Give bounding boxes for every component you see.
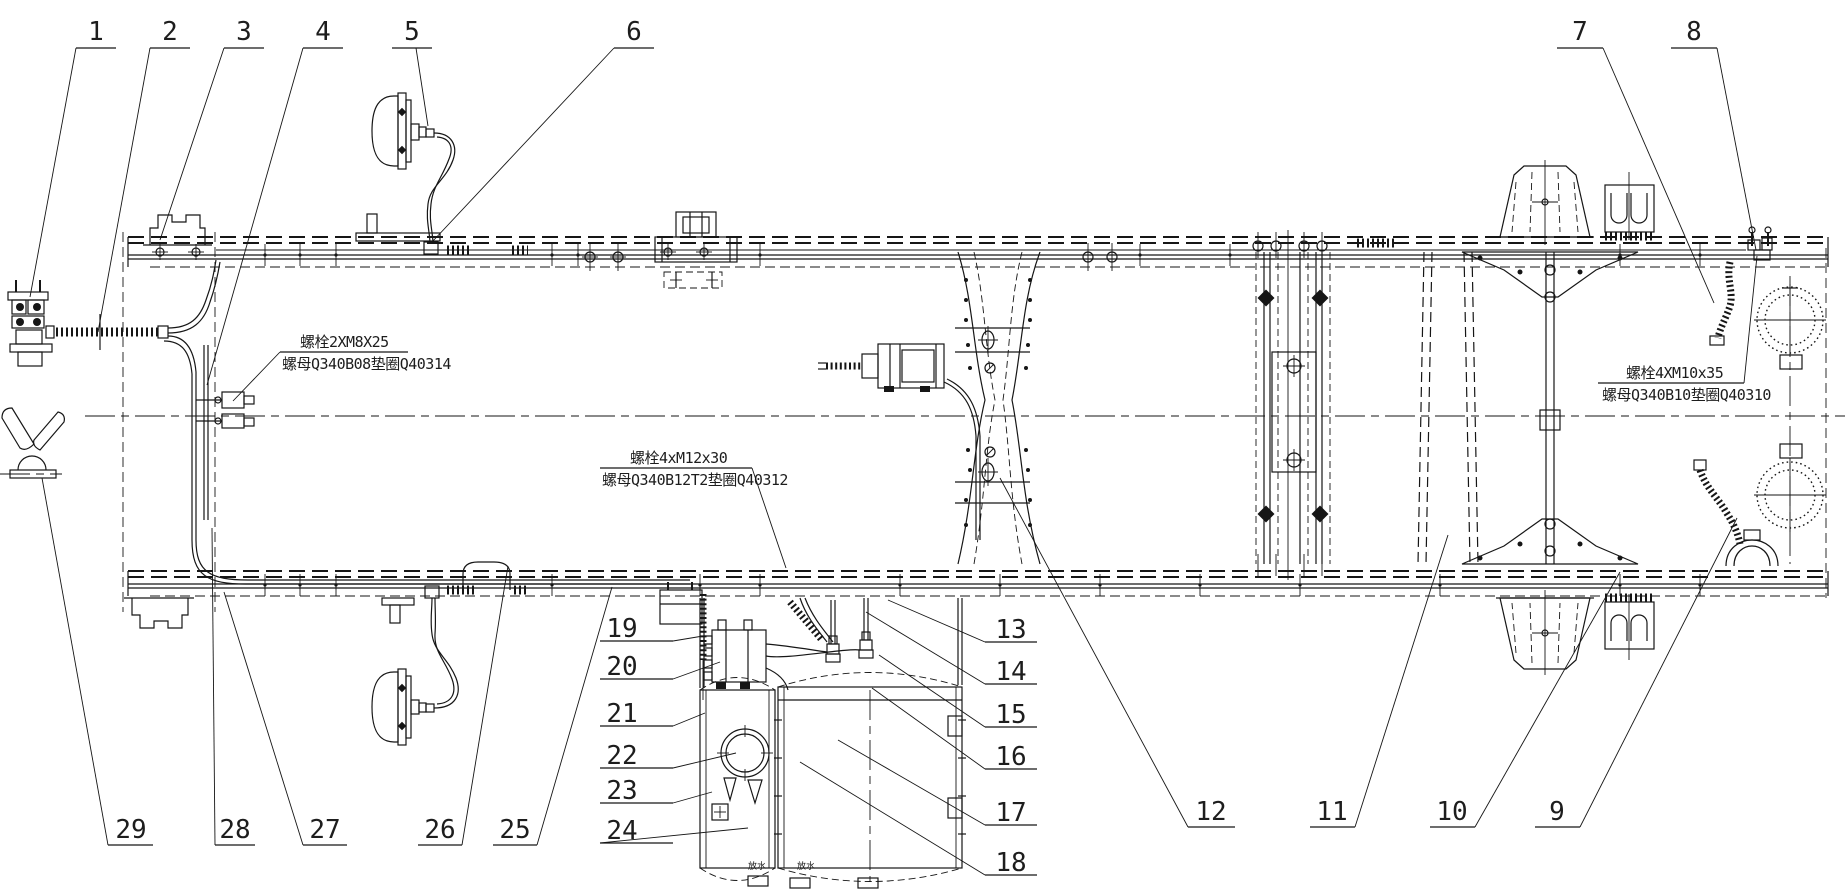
callout-number: 18 xyxy=(995,848,1026,878)
bolt-note-middle: 螺栓4xM12x30螺母Q340B12T2垫圈Q40312 xyxy=(600,449,788,568)
callout-number: 21 xyxy=(606,699,637,729)
callout-leader xyxy=(1475,572,1620,827)
note-leader xyxy=(1744,256,1757,383)
cross-member-rear xyxy=(1462,252,1638,564)
callout-number: 27 xyxy=(309,815,340,845)
bolt-note-rear: 螺栓4XM10x35螺母Q340B10垫圈Q40310 xyxy=(1598,256,1771,404)
pipe-clamps xyxy=(263,243,1701,596)
note-line-2: 螺母Q340B10垫圈Q40310 xyxy=(1602,386,1771,404)
callout-12: 12 xyxy=(1000,478,1235,827)
callout-22: 22 xyxy=(600,741,736,771)
callout-leader xyxy=(537,587,612,845)
front-tube-bundle xyxy=(164,260,690,584)
rear-u-bracket-bottom xyxy=(1605,594,1654,660)
tank-labels-layer: 放水放水 xyxy=(748,860,815,872)
callout-leader xyxy=(1000,478,1188,827)
callout-leader xyxy=(1717,48,1756,250)
callout-leader xyxy=(673,662,720,679)
callout-25: 25 xyxy=(493,587,612,845)
callout-number: 29 xyxy=(115,815,146,845)
note-line-1: 螺栓2XM8X25 xyxy=(300,333,389,351)
callout-leader xyxy=(866,612,985,684)
callout-number: 25 xyxy=(499,815,530,845)
callout-number: 23 xyxy=(606,776,637,806)
callout-number: 14 xyxy=(995,657,1026,687)
callout-leader xyxy=(30,48,76,297)
note-line-1: 螺栓4xM12x30 xyxy=(630,449,728,467)
callout-number: 3 xyxy=(236,17,252,47)
callout-leader xyxy=(888,600,985,642)
callout-1: 1 xyxy=(30,17,116,297)
tank-drain-label: 放水 xyxy=(748,860,766,872)
cross-member-hourglass xyxy=(955,252,1040,564)
callout-3: 3 xyxy=(160,17,264,240)
callout-29: 29 xyxy=(42,478,153,845)
bolt-note-front: 螺栓2XM8X25螺母Q340B08垫圈Q40314 xyxy=(233,333,451,401)
air-tank-assembly xyxy=(660,582,966,888)
callout-number: 2 xyxy=(162,17,178,47)
callout-leader xyxy=(224,592,303,845)
foot-brake-valve xyxy=(8,280,52,366)
callout-number: 4 xyxy=(315,17,331,47)
callout-number: 13 xyxy=(995,615,1026,645)
callout-4: 4 xyxy=(207,17,343,385)
callout-leader xyxy=(207,48,303,385)
bolt-notes-layer: 螺栓2XM8X25螺母Q340B08垫圈Q40314螺栓4xM12x30螺母Q3… xyxy=(233,256,1771,568)
callout-number: 6 xyxy=(626,17,642,47)
callout-number: 17 xyxy=(995,798,1026,828)
callout-number: 11 xyxy=(1316,797,1347,827)
reference-lines xyxy=(85,232,1845,612)
note-line-2: 螺母Q340B12T2垫圈Q40312 xyxy=(602,471,788,489)
note-leader xyxy=(233,352,280,401)
callout-7: 7 xyxy=(1557,17,1714,303)
callout-leader xyxy=(673,636,703,641)
callout-10: 10 xyxy=(1430,572,1620,827)
tank-drain-label: 放水 xyxy=(797,860,815,872)
callout-number: 28 xyxy=(219,815,250,845)
callout-leader xyxy=(42,478,108,845)
front-supply-hose xyxy=(46,314,168,350)
mid-rail-mounts xyxy=(463,212,1117,590)
callout-number: 9 xyxy=(1549,797,1565,827)
callout-21: 21 xyxy=(600,699,705,729)
callout-11: 11 xyxy=(1310,535,1448,827)
frame-rails xyxy=(128,237,1828,596)
front-brake-chamber-bottom xyxy=(372,586,458,745)
callout-8: 8 xyxy=(1671,17,1756,250)
chassis-piping-drawing: 螺栓2XM8X25螺母Q340B08垫圈Q40314螺栓4xM12x30螺母Q3… xyxy=(0,0,1848,890)
callout-number: 5 xyxy=(404,17,420,47)
callout-number: 12 xyxy=(1195,797,1226,827)
air-horns xyxy=(0,408,64,478)
callout-number: 22 xyxy=(606,741,637,771)
callout-leader xyxy=(673,753,736,768)
cross-member-dashed xyxy=(1418,252,1478,564)
callout-number: 26 xyxy=(424,815,455,845)
note-line-2: 螺母Q340B08垫圈Q40314 xyxy=(282,355,451,373)
callout-layer: 1234567891011121314151617181920212223242… xyxy=(30,17,1756,878)
callout-2: 2 xyxy=(98,17,190,332)
callout-number: 16 xyxy=(995,742,1026,772)
rear-axle-bottom xyxy=(1694,444,1826,566)
rear-axle-top xyxy=(1710,227,1826,369)
callout-number: 15 xyxy=(995,700,1026,730)
rear-cab-mount-bottom xyxy=(1496,590,1594,675)
callout-leader xyxy=(416,48,428,126)
callout-leader xyxy=(98,48,150,332)
center-brake-valve xyxy=(818,344,980,540)
callout-number: 1 xyxy=(88,17,104,47)
callout-number: 19 xyxy=(606,614,637,644)
cross-member-bolted xyxy=(1253,230,1330,580)
callout-leader xyxy=(1355,535,1448,827)
callout-20: 20 xyxy=(600,652,720,682)
callout-leader xyxy=(160,48,224,240)
callout-19: 19 xyxy=(600,614,703,644)
callout-number: 8 xyxy=(1686,17,1702,47)
callout-6: 6 xyxy=(432,17,654,242)
callout-number: 10 xyxy=(1436,797,1467,827)
callout-number: 7 xyxy=(1572,17,1588,47)
callout-28: 28 xyxy=(212,528,255,845)
callout-number: 20 xyxy=(606,652,637,682)
callout-23: 23 xyxy=(600,776,712,806)
note-line-1: 螺栓4XM10x35 xyxy=(1626,364,1723,382)
rear-u-bracket-top xyxy=(1605,172,1654,240)
callout-leader xyxy=(432,48,614,242)
callout-leader xyxy=(879,655,985,727)
callout-27: 27 xyxy=(224,592,347,845)
callout-leader xyxy=(462,566,508,845)
rear-cab-mount-top xyxy=(1496,160,1594,245)
front-brake-chamber-top xyxy=(356,93,455,254)
